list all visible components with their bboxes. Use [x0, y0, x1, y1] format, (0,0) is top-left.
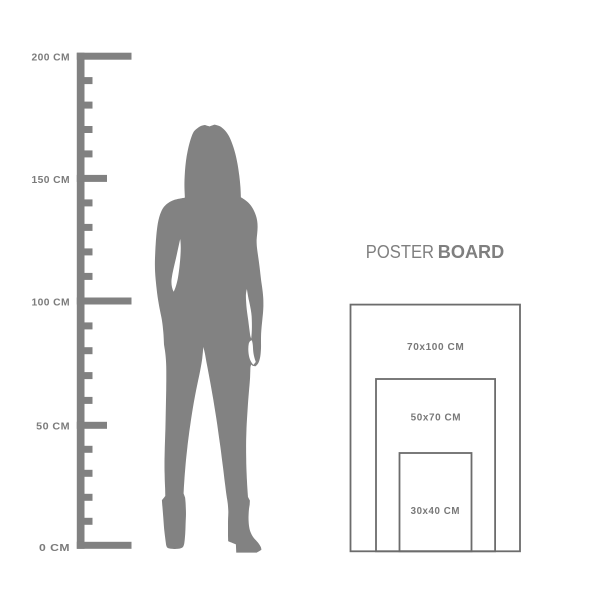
svg-text:BOARD: BOARD [438, 241, 504, 262]
svg-text:100 CM: 100 CM [32, 297, 71, 308]
svg-text:0 CM: 0 CM [39, 543, 70, 554]
svg-text:200 CM: 200 CM [32, 53, 71, 64]
svg-text:50 CM: 50 CM [36, 421, 70, 432]
svg-text:150 CM: 150 CM [32, 175, 71, 186]
svg-text:POSTER: POSTER [366, 241, 434, 262]
svg-text:50x70 CM: 50x70 CM [411, 413, 462, 424]
svg-text:70x100 CM: 70x100 CM [407, 342, 464, 353]
svg-text:30x40 CM: 30x40 CM [411, 506, 460, 517]
